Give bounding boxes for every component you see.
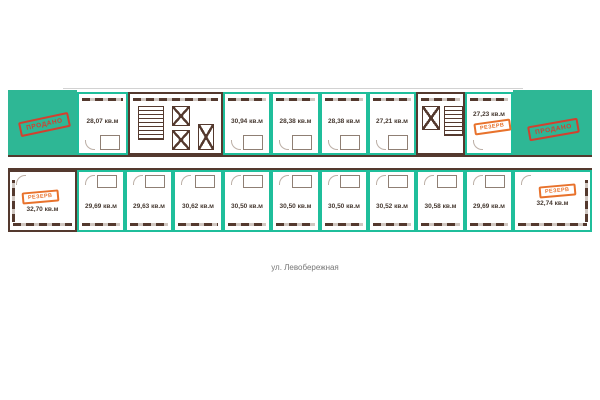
reserve-stamp: РЕЗЕРВ (473, 119, 511, 136)
window-strip (470, 223, 508, 226)
unit-top-2[interactable]: 28,38 кв.м (271, 92, 320, 155)
unit-bottom-0[interactable]: РЕЗЕРВ 32,70 кв.м (8, 170, 77, 232)
window-strip (133, 98, 218, 101)
unit-area-label: 29,69 кв.м (467, 203, 511, 210)
unit-top-1[interactable]: 30,94 кв.м (223, 92, 271, 155)
window-strip (421, 223, 460, 226)
door-arc (424, 175, 434, 185)
unit-area-label: 30,58 кв.м (418, 203, 463, 210)
window-strip (276, 98, 315, 101)
door-arc (279, 140, 289, 150)
window-strip (228, 223, 266, 226)
unit-area-label: 28,38 кв.м (273, 118, 318, 125)
corridor (8, 155, 592, 170)
window-strip (130, 223, 168, 226)
unit-top-0[interactable]: 28,07 кв.м (77, 92, 128, 155)
window-strip (325, 98, 363, 101)
window-strip (13, 223, 72, 226)
bathroom-partition (145, 175, 165, 188)
door-arc (376, 140, 386, 150)
unit-area-label: 32,74 кв.м (515, 200, 590, 207)
door-arc (133, 175, 143, 185)
door-arc (473, 175, 483, 185)
unit-bottom-5[interactable]: 30,50 кв.м (271, 170, 320, 232)
stairs-icon (444, 106, 463, 136)
unit-bottom-9[interactable]: 29,69 кв.м (465, 170, 513, 232)
unit-top-3[interactable]: 28,38 кв.м (320, 92, 368, 155)
elevator-icon (422, 106, 440, 130)
unit-bottom-6[interactable]: 30,50 кв.м (320, 170, 368, 232)
unit-bottom-8[interactable]: 30,58 кв.м (416, 170, 465, 232)
bathroom-partition (437, 175, 457, 188)
unit-top-5[interactable]: 27,23 кв.м РЕЗЕРВ (465, 92, 513, 155)
bathroom-partition (195, 175, 215, 188)
door-arc (376, 175, 386, 185)
unit-bottom-2[interactable]: 29,63 кв.м (125, 170, 173, 232)
bathroom-partition (388, 175, 408, 188)
bathroom-partition (243, 135, 263, 150)
sold-block-top-left: ПРОДАНО (8, 90, 77, 161)
window-strip (325, 223, 363, 226)
door-arc (328, 175, 338, 185)
street-label: ул. Левобережная (240, 263, 370, 272)
window-strip (421, 98, 460, 101)
bathroom-partition (292, 135, 312, 150)
window-strip (518, 223, 587, 226)
stair-core-right (416, 92, 465, 155)
bathroom-partition (388, 135, 408, 150)
window-strip (228, 98, 266, 101)
window-strip (12, 180, 15, 222)
unit-area-label: 30,50 кв.м (225, 203, 269, 210)
unit-area-label: 30,62 кв.м (175, 203, 221, 210)
stairs-icon (138, 106, 164, 140)
unit-bottom-1[interactable]: 29,69 кв.м (77, 170, 125, 232)
window-strip (82, 223, 120, 226)
stair-core-left (128, 92, 223, 155)
building-plan: ПРОДАНО ПРОДАНО 28,07 кв.м 30,94 кв.м (8, 90, 592, 238)
unit-bottom-3[interactable]: 30,62 кв.м (173, 170, 223, 232)
unit-area-label: 32,70 кв.м (10, 206, 75, 213)
reserve-stamp: РЕЗЕРВ (22, 189, 59, 204)
unit-area-label: 29,69 кв.м (79, 203, 123, 210)
window-strip (373, 98, 411, 101)
bathroom-partition (485, 175, 505, 188)
unit-area-label: 29,63 кв.м (127, 203, 171, 210)
door-arc (231, 175, 241, 185)
balcony-edge-line (63, 88, 523, 89)
bathroom-partition (340, 135, 360, 150)
window-strip (276, 223, 315, 226)
floorplan-canvas: ПРОДАНО ПРОДАНО 28,07 кв.м 30,94 кв.м (0, 0, 600, 400)
unit-area-label: 28,38 кв.м (322, 118, 366, 125)
window-strip (373, 223, 411, 226)
window-strip (178, 223, 218, 226)
unit-bottom-7[interactable]: 30,52 кв.м (368, 170, 416, 232)
unit-area-label: 30,52 кв.м (370, 203, 414, 210)
sold-stamp: ПРОДАНО (527, 118, 580, 142)
bathroom-partition (97, 175, 117, 188)
door-arc (181, 175, 191, 185)
door-arc (521, 175, 531, 185)
unit-top-4[interactable]: 27,21 кв.м (368, 92, 416, 155)
door-arc (279, 175, 289, 185)
reserve-stamp: РЕЗЕРВ (539, 183, 576, 198)
bathroom-partition (292, 175, 312, 188)
unit-area-label: 27,23 кв.м (467, 111, 511, 118)
elevator-icon (172, 130, 190, 150)
elevator-icon (198, 124, 214, 150)
unit-area-label: 27,21 кв.м (370, 118, 414, 125)
bathroom-partition (100, 135, 120, 150)
unit-bottom-10[interactable]: РЕЗЕРВ 32,74 кв.м (513, 170, 592, 232)
unit-area-label: 30,94 кв.м (225, 118, 269, 125)
door-arc (85, 140, 95, 150)
door-arc (473, 140, 483, 150)
unit-area-label: 30,50 кв.м (273, 203, 318, 210)
elevator-icon (172, 106, 190, 126)
bathroom-partition (243, 175, 263, 188)
door-arc (328, 140, 338, 150)
unit-area-label: 28,07 кв.м (79, 118, 126, 125)
sold-block-top-right: ПРОДАНО (513, 90, 592, 160)
door-arc (16, 175, 26, 185)
window-strip (470, 98, 508, 101)
unit-bottom-4[interactable]: 30,50 кв.м (223, 170, 271, 232)
sold-stamp: ПРОДАНО (18, 112, 71, 137)
door-arc (231, 140, 241, 150)
bathroom-partition (340, 175, 360, 188)
door-arc (85, 175, 95, 185)
unit-area-label: 30,50 кв.м (322, 203, 366, 210)
window-strip (82, 98, 123, 101)
